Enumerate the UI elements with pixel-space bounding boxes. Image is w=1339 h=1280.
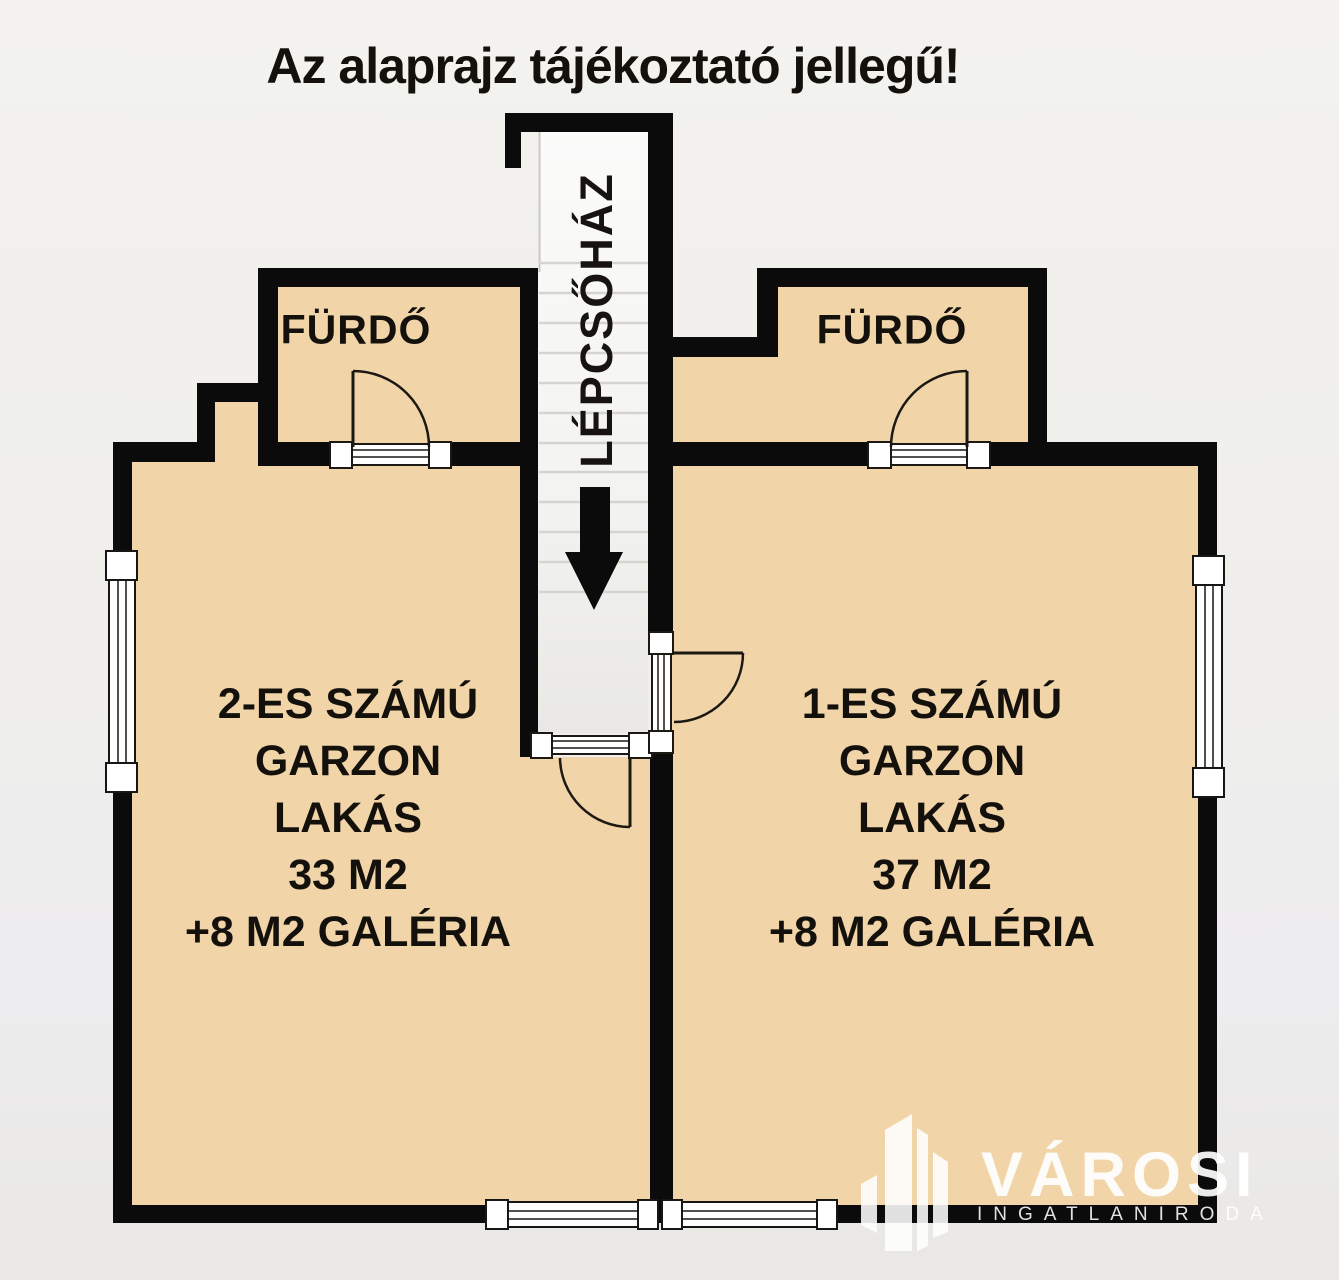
bathroom-left-label: FÜRDŐ bbox=[281, 307, 432, 354]
window-right-wall bbox=[1193, 556, 1224, 797]
watermark-subtitle: INGATLANIRODA bbox=[977, 1204, 1274, 1226]
apartment-1-line-2: GARZON bbox=[769, 733, 1095, 790]
apartment-1-label: 1-ES SZÁMÚ GARZON LAKÁS 37 M2 +8 M2 GALÉ… bbox=[769, 676, 1095, 961]
apartment-2-line-1: 2-ES SZÁMÚ bbox=[185, 676, 511, 733]
floorplan-drawing bbox=[0, 0, 1339, 1280]
apartment-1-line-4: 37 M2 bbox=[769, 847, 1095, 904]
apartment-2-line-3: LAKÁS bbox=[185, 790, 511, 847]
apartment-1-line-5: +8 M2 GALÉRIA bbox=[769, 904, 1095, 961]
window-left-wall bbox=[106, 551, 137, 792]
watermark-brand: VÁROSI bbox=[981, 1139, 1259, 1211]
apartment-2-line-5: +8 M2 GALÉRIA bbox=[185, 904, 511, 961]
bathroom-left-floor bbox=[258, 268, 538, 466]
disclaimer-title: Az alaprajz tájékoztató jellegű! bbox=[266, 37, 959, 95]
apartment-2-line-2: GARZON bbox=[185, 733, 511, 790]
bathroom-right-label: FÜRDŐ bbox=[817, 307, 968, 354]
window-bottom-left bbox=[486, 1200, 658, 1229]
apartment-1-line-3: LAKÁS bbox=[769, 790, 1095, 847]
window-bottom-right bbox=[662, 1200, 837, 1229]
floorplan-image: Az alaprajz tájékoztató jellegű! FÜRDŐ F… bbox=[0, 0, 1339, 1280]
stairwell-label: LÉPCSŐHÁZ bbox=[571, 172, 623, 468]
apartment-1-line-1: 1-ES SZÁMÚ bbox=[769, 676, 1095, 733]
bathroom-right-floor bbox=[757, 268, 1047, 466]
apartment-2-label: 2-ES SZÁMÚ GARZON LAKÁS 33 M2 +8 M2 GALÉ… bbox=[185, 676, 511, 961]
apartment-2-line-4: 33 M2 bbox=[185, 847, 511, 904]
